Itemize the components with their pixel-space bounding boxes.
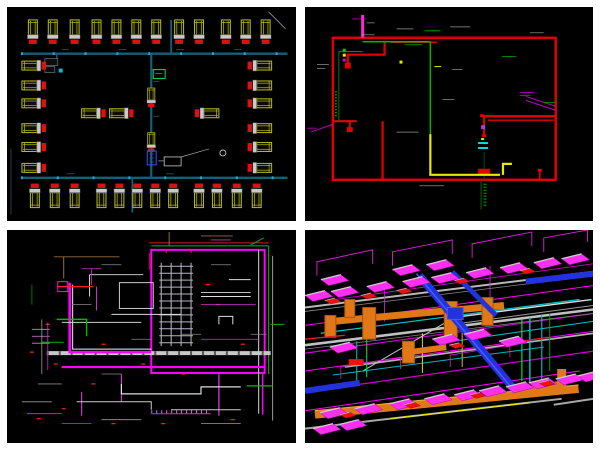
floor-plan-walls-view — [305, 7, 594, 221]
mep-wireframe-plan-view — [7, 230, 296, 444]
mep-3d-isometric-view — [305, 230, 594, 444]
panel-bottom-left — [7, 230, 296, 444]
panel-top-left — [7, 7, 296, 221]
cad-collage — [0, 0, 600, 450]
floor-plan-machines-view — [7, 7, 296, 221]
panel-top-right — [305, 7, 594, 221]
panel-bottom-right — [305, 230, 594, 444]
